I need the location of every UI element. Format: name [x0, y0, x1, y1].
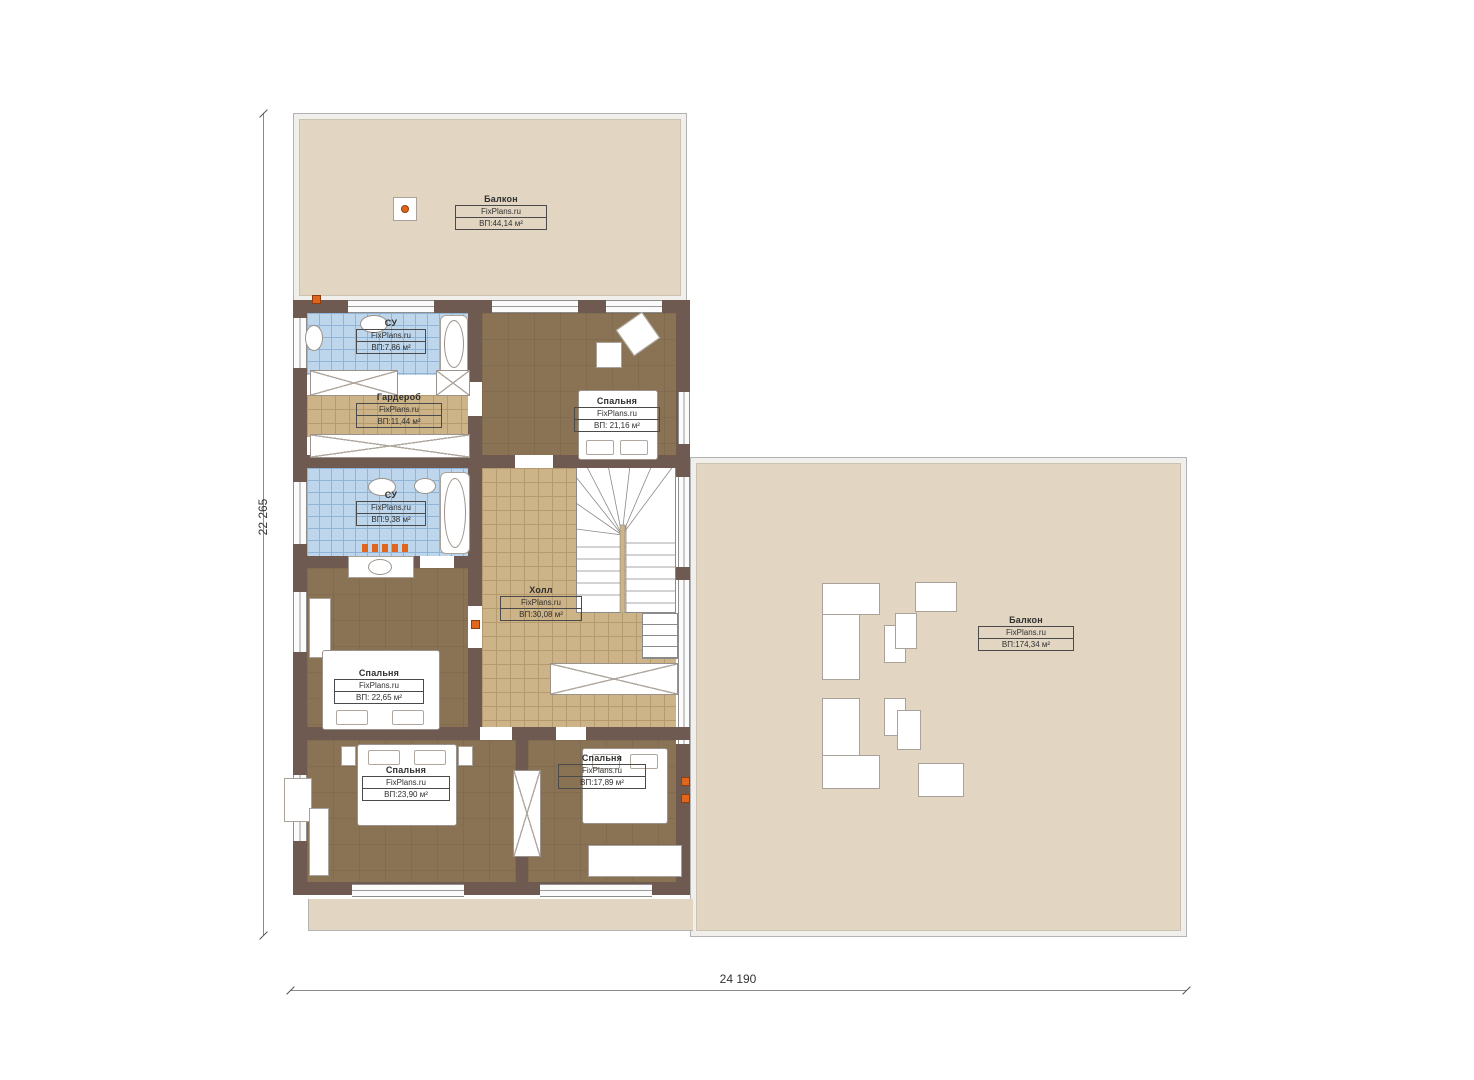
- floor-plan-canvas: Балкон FixPlans.ru ВП:44,14 м² СУ FixPla…: [0, 0, 1474, 1080]
- label-su-mid: СУ FixPlans.ru ВП:9,38 м²: [356, 490, 426, 526]
- coffee-table-1b: [895, 613, 917, 649]
- room-area: ВП:9,38 м²: [357, 514, 425, 525]
- door-bedroom-br: [556, 727, 586, 740]
- label-hall: Холл FixPlans.ru ВП:30,08 м²: [500, 585, 582, 621]
- toilet-top: [305, 325, 323, 351]
- vanity-mid-sink: [368, 559, 392, 575]
- room-area: ВП: 22,65 м²: [335, 692, 423, 703]
- wall-bedrooms-divider-top: [516, 740, 528, 770]
- dresser-mid-left: [309, 598, 331, 658]
- wall-bedrooms-divider-bottom: [516, 855, 528, 895]
- brand-text: FixPlans.ru: [501, 597, 581, 609]
- balcony-drain-box: [393, 197, 417, 221]
- room-area: ВП: 21,16 м²: [575, 420, 659, 431]
- window-left-2: [293, 482, 307, 544]
- corner-marker-top-left: [312, 295, 321, 304]
- room-name: Спальня: [574, 396, 660, 407]
- bathtub-top-basin: [444, 320, 464, 368]
- room-name: Гардероб: [356, 392, 442, 403]
- radiator-marker-1: [681, 777, 690, 786]
- staircase-lower-run: [642, 613, 678, 659]
- sofa-l-top-horizontal: [822, 583, 880, 615]
- brand-text: FixPlans.ru: [575, 408, 659, 420]
- window-bottom-2: [540, 884, 652, 897]
- window-top-3: [606, 300, 662, 313]
- wardrobe-closet-bottom: [310, 434, 470, 458]
- window-right-glass-wall: [678, 477, 690, 744]
- bed-bottom-left-pillow-2: [414, 750, 446, 765]
- bed-mid-left-pillow-1: [336, 710, 368, 725]
- armchair-top-right: [915, 582, 957, 612]
- brand-text: FixPlans.ru: [456, 206, 546, 218]
- bed-bottom-left-pillow-1: [368, 750, 400, 765]
- brand-text: FixPlans.ru: [357, 330, 425, 342]
- wall-right-mullion: [676, 567, 690, 580]
- room-area: ВП:23,90 м²: [363, 789, 449, 800]
- bathtub-mid-basin: [444, 478, 466, 548]
- label-wardrobe: Гардероб FixPlans.ru ВП:11,44 м²: [356, 392, 442, 428]
- room-area: ВП:11,44 м²: [357, 416, 441, 427]
- door-su2: [420, 556, 454, 568]
- staircase: [576, 465, 676, 613]
- room-name: Спальня: [334, 668, 424, 679]
- label-balcony-right: Балкон FixPlans.ru ВП:174,34 м²: [978, 615, 1074, 651]
- room-area: ВП:17,89 м²: [559, 777, 645, 788]
- room-area: ВП:44,14 м²: [456, 218, 546, 229]
- radiator-marker-2: [681, 794, 690, 803]
- nightstand-bl-1: [341, 746, 356, 766]
- wall-right-upper: [676, 300, 690, 477]
- window-top-2: [492, 300, 578, 313]
- window-bottom-1: [352, 884, 464, 897]
- coffee-table-2b: [897, 710, 921, 750]
- heated-rail-dots: [362, 544, 412, 552]
- room-area: ВП:30,08 м²: [501, 609, 581, 620]
- window-left-3: [293, 592, 307, 652]
- brand-text: FixPlans.ru: [357, 404, 441, 416]
- room-name: Спальня: [362, 765, 450, 776]
- room-name: Холл: [500, 585, 582, 596]
- room-name: СУ: [356, 318, 426, 329]
- brand-text: FixPlans.ru: [559, 765, 645, 777]
- dim-line-horizontal: [290, 990, 1186, 991]
- label-bedroom-bottom-right: Спальня FixPlans.ru ВП:17,89 м²: [558, 753, 646, 789]
- bed-mid-left-pillow-2: [392, 710, 424, 725]
- window-top-1: [348, 300, 434, 313]
- door-marker-hall: [471, 620, 480, 629]
- window-right-upper: [678, 392, 690, 444]
- brand-text: FixPlans.ru: [335, 680, 423, 692]
- room-name: Балкон: [978, 615, 1074, 626]
- balcony-drain-dot: [401, 205, 409, 213]
- label-bedroom-bottom-left: Спальня FixPlans.ru ВП:23,90 м²: [362, 765, 450, 801]
- label-bedroom-mid-left: Спальня FixPlans.ru ВП: 22,65 м²: [334, 668, 424, 704]
- sofa-l-bottom-horizontal: [822, 755, 880, 789]
- bed-top-right-pillow-2: [620, 440, 648, 455]
- room-area: ВП:7,86 м²: [357, 342, 425, 353]
- terrace-bottom-strip: [308, 899, 693, 931]
- cabinet-bottom-left: [309, 808, 329, 876]
- room-name: Спальня: [558, 753, 646, 764]
- room-name: СУ: [356, 490, 426, 501]
- door-hall-top: [515, 455, 553, 468]
- door-bedroom-bl: [480, 727, 512, 740]
- dim-label-width: 24 190: [708, 972, 768, 986]
- room-area: ВП:174,34 м²: [979, 639, 1073, 650]
- label-bedroom-top-right: Спальня FixPlans.ru ВП: 21,16 м²: [574, 396, 660, 432]
- label-balcony-top: Балкон FixPlans.ru ВП:44,14 м²: [455, 194, 547, 230]
- nightstand-bl-2: [458, 746, 473, 766]
- wall-vertical-hall: [468, 468, 482, 727]
- balcony-right-floor: [690, 457, 1187, 937]
- bay-unit-bottom-left: [284, 778, 312, 822]
- armchair-bottom-right: [918, 763, 964, 797]
- bed-top-right-pillow-1: [586, 440, 614, 455]
- room-name: Балкон: [455, 194, 547, 205]
- brand-text: FixPlans.ru: [363, 777, 449, 789]
- brand-text: FixPlans.ru: [357, 502, 425, 514]
- door-wardrobe: [468, 382, 482, 416]
- brand-text: FixPlans.ru: [979, 627, 1073, 639]
- dim-label-height: 22 265: [256, 487, 270, 547]
- closet-bottom-right-top: [550, 663, 678, 695]
- desk-bottom-right: [588, 845, 682, 877]
- closet-between-bedrooms: [513, 770, 541, 857]
- side-table-top-right: [596, 342, 622, 368]
- label-su-top: СУ FixPlans.ru ВП:7,86 м²: [356, 318, 426, 354]
